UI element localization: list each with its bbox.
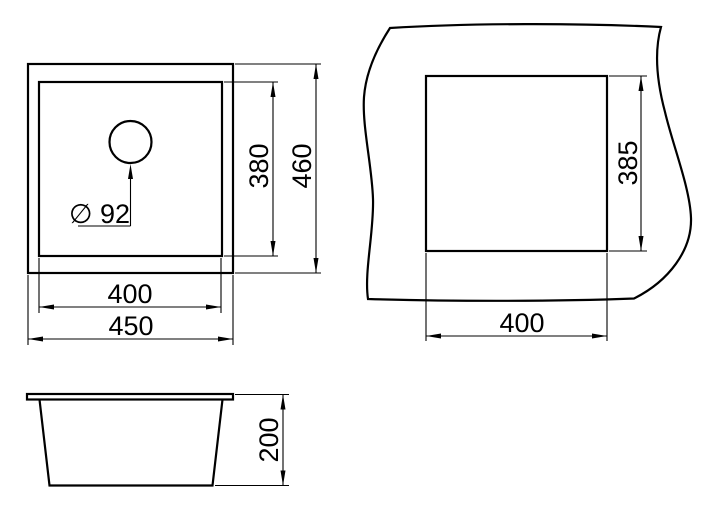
dim-label-outer-depth: 460 (287, 143, 317, 188)
dim-label-cutout-height: 385 (613, 140, 643, 185)
dim-label-cutout-width: 400 (499, 308, 544, 338)
arrowhead-icon (639, 76, 644, 91)
drawing-page: ∅ 92 380 460 (0, 0, 720, 514)
cutout-rect (426, 76, 607, 251)
arrowhead-icon (218, 337, 233, 342)
arrowhead-icon (271, 82, 276, 97)
dim-label-side-depth: 200 (254, 417, 284, 462)
arrowhead-icon (314, 258, 319, 273)
arrowhead-icon (39, 305, 54, 310)
arrowhead-icon (281, 471, 286, 486)
cutout-view: 385 400 (364, 24, 691, 341)
dim-plan-inner-width: 400 (39, 258, 221, 313)
arrowhead-icon (281, 395, 286, 410)
sink-bowl-profile (40, 400, 223, 486)
dim-side-depth: 200 (215, 395, 289, 486)
arrowhead-icon (206, 305, 221, 310)
drain-hole-circle (110, 121, 152, 163)
arrowhead-icon (639, 236, 644, 251)
arrowhead-icon (271, 241, 276, 256)
drain-diameter-label: ∅ 92 (69, 199, 130, 229)
plan-view: ∅ 92 380 460 (28, 64, 321, 345)
arrowhead-icon (28, 337, 43, 342)
arrowhead-icon (314, 64, 319, 79)
dim-cutout-height: 385 (609, 76, 647, 251)
dim-label-outer-width: 450 (108, 311, 153, 341)
sink-technical-drawing: ∅ 92 380 460 (0, 0, 720, 514)
dim-label-inner-depth: 380 (244, 143, 274, 188)
leader-arrowhead-icon (128, 164, 133, 179)
arrowhead-icon (426, 334, 441, 339)
arrowhead-icon (592, 334, 607, 339)
dim-cutout-width: 400 (426, 253, 607, 341)
sink-rim-profile (27, 394, 233, 400)
dim-label-inner-width: 400 (107, 279, 152, 309)
drain-leader: ∅ 92 (69, 164, 133, 229)
side-view: 200 (27, 394, 289, 486)
